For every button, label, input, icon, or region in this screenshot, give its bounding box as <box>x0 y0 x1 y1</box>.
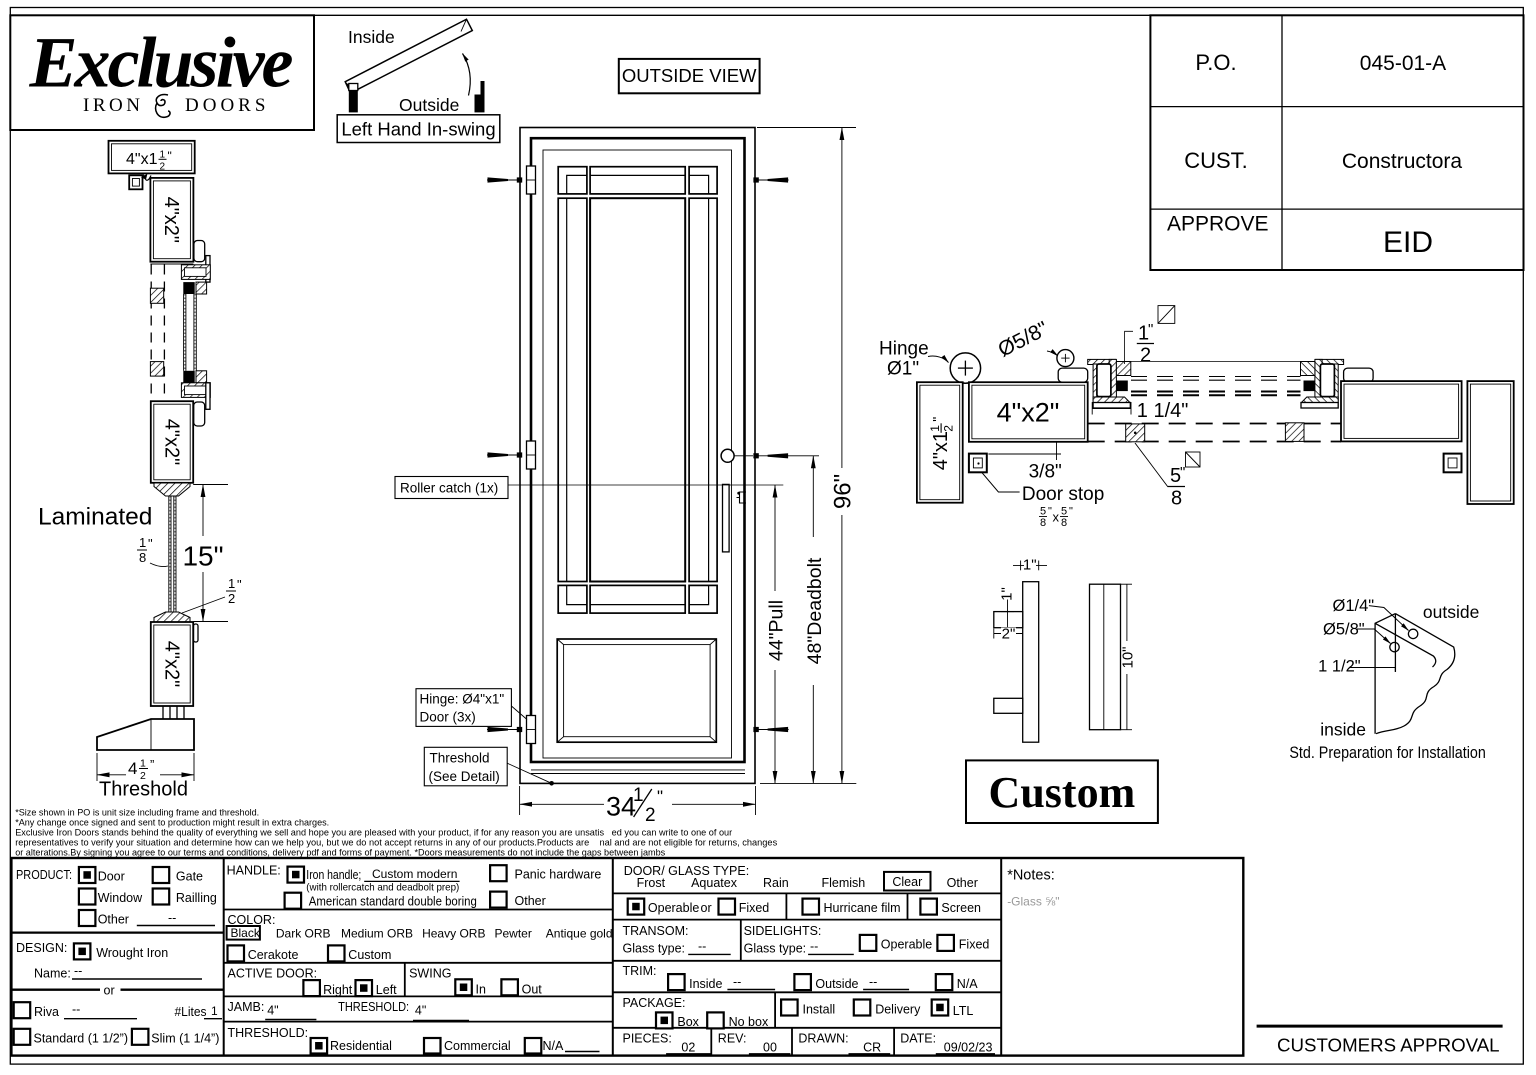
svg-text:1": 1" <box>1023 557 1037 574</box>
svg-text:DRAWN:: DRAWN: <box>798 1032 848 1046</box>
svg-text:”: ” <box>150 757 154 772</box>
svg-text:Out: Out <box>522 983 543 997</box>
svg-text:Panic hardware: Panic hardware <box>515 868 602 882</box>
svg-text:Exclusive: Exclusive <box>29 23 293 103</box>
svg-text:CUST.: CUST. <box>1184 148 1248 173</box>
svg-text:Custom: Custom <box>348 948 391 962</box>
svg-text:Outside: Outside <box>399 95 459 115</box>
svg-text:IRON: IRON <box>83 95 143 116</box>
svg-text:Heavy ORB: Heavy ORB <box>422 927 485 941</box>
svg-text:1: 1 <box>228 576 235 591</box>
svg-text:Ø1": Ø1" <box>887 359 919 380</box>
svg-text:(with rollercatch and deadbolt: (with rollercatch and deadbolt prep) <box>306 882 459 894</box>
svg-text:44"Pull: 44"Pull <box>766 600 788 661</box>
svg-text:34: 34 <box>606 792 636 822</box>
svg-text:TRANSOM:: TRANSOM: <box>623 924 689 938</box>
svg-text:LTL: LTL <box>953 1004 974 1018</box>
svg-text:4"x2": 4"x2" <box>160 197 182 243</box>
svg-text:1: 1 <box>633 785 644 806</box>
svg-text:TRIM:: TRIM: <box>623 964 657 978</box>
svg-text:Other: Other <box>515 894 546 908</box>
svg-text:Door stop: Door stop <box>1022 484 1104 505</box>
svg-text:": " <box>1048 506 1052 518</box>
svg-text:--: -- <box>74 964 82 978</box>
svg-text:2": 2" <box>1002 626 1016 643</box>
svg-text:09/02/23: 09/02/23 <box>944 1041 993 1055</box>
svg-text:Name:: Name: <box>34 967 71 981</box>
svg-text:-Glass ⅝": -Glass ⅝" <box>1007 895 1059 909</box>
svg-text:N/A: N/A <box>957 977 979 991</box>
svg-text:Iron handle;: Iron handle; <box>306 868 361 882</box>
svg-text:Threshold: Threshold <box>99 779 188 801</box>
svg-text:1: 1 <box>211 1004 218 1018</box>
svg-text:DATE:: DATE: <box>900 1032 936 1046</box>
svg-text:1 1/2": 1 1/2" <box>1318 658 1361 676</box>
svg-text:1: 1 <box>140 758 146 770</box>
svg-text:Other: Other <box>98 913 129 927</box>
svg-text:Fixed: Fixed <box>739 901 770 915</box>
svg-text:": " <box>148 536 153 551</box>
svg-text:00: 00 <box>763 1041 777 1055</box>
svg-text:48"Deadbolt: 48"Deadbolt <box>804 557 826 664</box>
svg-text:CUSTOMERS APPROVAL: CUSTOMERS APPROVAL <box>1277 1035 1500 1056</box>
svg-text:Delivery: Delivery <box>875 1003 921 1017</box>
svg-text:2: 2 <box>1140 345 1151 367</box>
svg-text:Gate: Gate <box>176 870 203 884</box>
svg-text:Inside: Inside <box>689 977 722 991</box>
svg-text:Dark ORB: Dark ORB <box>276 927 331 941</box>
svg-text:#Lites: #Lites <box>175 1005 207 1019</box>
svg-text:OUTSIDE VIEW: OUTSIDE VIEW <box>622 65 757 86</box>
svg-text:1: 1 <box>928 425 942 432</box>
svg-text:Left Hand In-swing: Left Hand In-swing <box>341 119 495 140</box>
svg-text:or: or <box>701 901 712 915</box>
svg-text:Commercial: Commercial <box>444 1039 511 1053</box>
svg-text:Inside: Inside <box>348 27 395 47</box>
svg-text:JAMB:: JAMB: <box>228 1000 265 1014</box>
svg-text:DOORS: DOORS <box>185 95 269 116</box>
svg-text:1 1/4": 1 1/4" <box>1137 400 1189 422</box>
svg-text:x: x <box>1053 510 1060 525</box>
svg-text:1: 1 <box>139 535 146 550</box>
svg-text:Ø1/4": Ø1/4" <box>1333 597 1375 615</box>
svg-text:": " <box>1148 321 1153 338</box>
svg-text:SWING: SWING <box>409 967 451 981</box>
svg-text:Rain: Rain <box>763 876 789 890</box>
svg-text:Medium ORB: Medium ORB <box>341 927 413 941</box>
svg-text:Clear: Clear <box>892 875 922 889</box>
svg-text:": " <box>929 417 945 422</box>
svg-text:5: 5 <box>1040 506 1046 518</box>
svg-text:(See Detail): (See Detail) <box>429 769 500 784</box>
svg-text:": " <box>168 149 172 163</box>
svg-text:Antique gold: Antique gold <box>546 927 613 941</box>
svg-text:THRESHOLD:: THRESHOLD: <box>338 1000 409 1014</box>
svg-text:Custom modern: Custom modern <box>372 867 457 881</box>
svg-text:2: 2 <box>941 425 955 432</box>
svg-text:8: 8 <box>139 550 146 565</box>
svg-text:Railling: Railling <box>176 891 217 905</box>
svg-text:4"x1: 4"x1 <box>930 431 952 470</box>
svg-text:96": 96" <box>829 474 856 509</box>
svg-text:Left: Left <box>376 983 397 997</box>
svg-text:*Notes:: *Notes: <box>1007 868 1055 884</box>
svg-text:Roller catch (1x): Roller catch (1x) <box>400 481 498 496</box>
svg-text:2: 2 <box>160 162 166 173</box>
svg-text:8: 8 <box>1171 488 1182 510</box>
svg-text:4": 4" <box>267 1004 278 1018</box>
svg-text:Laminated: Laminated <box>38 504 152 531</box>
svg-text:Operable: Operable <box>648 901 699 915</box>
svg-text:THRESHOLD:: THRESHOLD: <box>228 1026 309 1040</box>
svg-text:No box: No box <box>729 1015 769 1029</box>
svg-text:4"x1: 4"x1 <box>126 151 158 168</box>
svg-text:APPROVE: APPROVE <box>1167 213 1269 236</box>
svg-text:Threshold: Threshold <box>430 751 490 766</box>
svg-text:Cerakote: Cerakote <box>248 948 299 962</box>
svg-text:--: -- <box>869 975 877 989</box>
svg-text:--: -- <box>72 1003 80 1017</box>
svg-text:Glass type:: Glass type: <box>623 942 686 956</box>
svg-text:Wrought Iron: Wrought Iron <box>96 946 168 960</box>
svg-text:HANDLE:: HANDLE: <box>227 864 281 878</box>
svg-text:15": 15" <box>182 541 223 572</box>
svg-text:Black: Black <box>231 926 261 940</box>
svg-text:": " <box>1069 506 1073 518</box>
svg-text:Residential: Residential <box>330 1039 392 1053</box>
svg-text:Hinge: Hinge <box>879 339 929 360</box>
svg-text:02: 02 <box>681 1041 695 1055</box>
svg-text:EID: EID <box>1383 226 1433 259</box>
svg-text:P.O.: P.O. <box>1195 50 1236 75</box>
svg-text:or: or <box>104 984 115 998</box>
svg-text:": " <box>657 787 663 806</box>
svg-text:Frost: Frost <box>637 876 666 890</box>
svg-text:Custom: Custom <box>989 768 1136 817</box>
svg-text:--: -- <box>810 940 818 954</box>
svg-text:Slim (1 1/4”): Slim (1 1/4”) <box>151 1032 219 1046</box>
svg-text:or alterations.By signing you: or alterations.By signing you agree to o… <box>15 847 665 858</box>
svg-text:4"x2": 4"x2" <box>997 398 1060 428</box>
svg-text:Flemish: Flemish <box>822 876 866 890</box>
svg-text:4": 4" <box>415 1004 426 1018</box>
svg-text:4: 4 <box>128 759 137 778</box>
svg-text:2: 2 <box>645 805 656 826</box>
svg-text:--: -- <box>168 911 176 925</box>
svg-text:3/8": 3/8" <box>1029 462 1062 483</box>
svg-text:4"x2": 4"x2" <box>160 419 182 465</box>
svg-text:1": 1" <box>999 587 1016 601</box>
svg-text:Operable: Operable <box>881 938 932 952</box>
svg-text:Std. Preparation for Installat: Std. Preparation for Installation <box>1289 744 1485 762</box>
svg-text:Other: Other <box>947 876 978 890</box>
svg-text:PRODUCT:: PRODUCT: <box>16 868 72 882</box>
svg-text:8: 8 <box>1040 517 1046 529</box>
svg-text:Constructora: Constructora <box>1342 150 1463 173</box>
svg-text:inside: inside <box>1320 720 1366 740</box>
svg-text:Right: Right <box>323 983 353 997</box>
svg-text:PIECES:: PIECES: <box>623 1032 672 1046</box>
svg-text:Door: Door <box>98 870 125 884</box>
svg-text:Hurricane film: Hurricane film <box>824 901 901 915</box>
svg-text:Riva: Riva <box>34 1005 59 1019</box>
svg-text:outside: outside <box>1423 602 1479 622</box>
svg-text:CR: CR <box>863 1041 881 1055</box>
svg-text:Box: Box <box>677 1015 699 1029</box>
svg-text:045-01-A: 045-01-A <box>1360 52 1446 75</box>
svg-text:5: 5 <box>1061 506 1067 518</box>
svg-text:": " <box>237 577 242 592</box>
svg-text:REV:: REV: <box>718 1032 747 1046</box>
svg-text:Outside: Outside <box>815 977 858 991</box>
svg-text:Pewter: Pewter <box>495 927 532 941</box>
svg-text:SIDELIGHTS:: SIDELIGHTS: <box>744 924 822 938</box>
svg-text:American standard double borin: American standard double boring <box>309 895 477 909</box>
svg-text:Install: Install <box>803 1003 836 1017</box>
svg-text:Fixed: Fixed <box>959 938 990 952</box>
svg-text:10": 10" <box>1119 646 1136 668</box>
svg-text:2: 2 <box>228 591 235 606</box>
svg-text:Standard (1 1/2”): Standard (1 1/2”) <box>34 1032 129 1046</box>
svg-text:": " <box>1180 464 1185 481</box>
svg-text:--: -- <box>698 940 706 954</box>
svg-text:Screen: Screen <box>941 901 981 915</box>
svg-text:Hinge: Ø4"x1": Hinge: Ø4"x1" <box>420 692 505 707</box>
svg-text:ACTIVE DOOR:: ACTIVE DOOR: <box>228 967 318 981</box>
svg-text:N/A: N/A <box>543 1039 565 1053</box>
svg-text:PACKAGE:: PACKAGE: <box>623 996 686 1010</box>
svg-text:Window: Window <box>98 891 143 905</box>
svg-text:In: In <box>476 983 486 997</box>
svg-text:Glass type:: Glass type: <box>744 942 807 956</box>
svg-text:Aquatex: Aquatex <box>691 876 738 890</box>
svg-text:DESIGN:: DESIGN: <box>16 941 67 955</box>
svg-text:4"x2": 4"x2" <box>160 641 182 687</box>
svg-text:8: 8 <box>1061 517 1067 529</box>
svg-text:Door (3x): Door (3x) <box>420 710 476 725</box>
svg-text:--: -- <box>733 975 741 989</box>
